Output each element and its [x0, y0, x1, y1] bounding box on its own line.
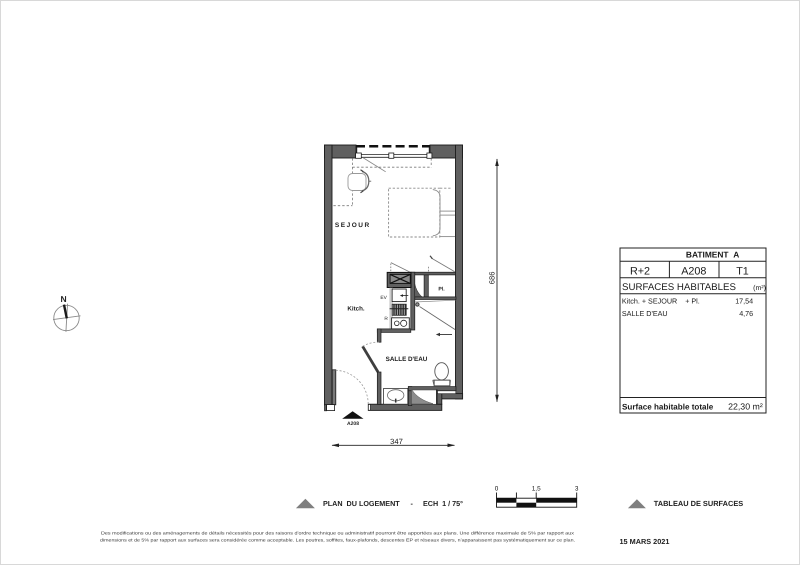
svg-text:T1: T1: [736, 266, 749, 278]
svg-text:SALLE D'EAU: SALLE D'EAU: [386, 356, 428, 363]
svg-text:Surface habitable totale: Surface habitable totale: [622, 403, 714, 412]
svg-text:3: 3: [575, 486, 579, 493]
svg-text:SALLE D'EAU: SALLE D'EAU: [622, 309, 668, 318]
svg-text:17,54: 17,54: [735, 297, 753, 306]
svg-text:(m²): (m²): [753, 284, 766, 292]
svg-text:Kitch. + SEJOUR + Pl.: Kitch. + SEJOUR + Pl.: [622, 297, 700, 306]
svg-text:15 MARS 2021: 15 MARS 2021: [620, 537, 670, 546]
svg-text:EV: EV: [380, 295, 387, 301]
svg-text:ECH 1 / 75°: ECH 1 / 75°: [423, 499, 463, 508]
svg-text:PLAN DU LOGEMENT: PLAN DU LOGEMENT: [323, 499, 400, 508]
svg-text:R: R: [384, 316, 388, 322]
svg-text:TABLEAU DE SURFACES: TABLEAU DE SURFACES: [654, 499, 743, 508]
svg-text:A208: A208: [681, 266, 706, 278]
svg-text:347: 347: [390, 437, 403, 446]
svg-text:SURFACES HABITABLES: SURFACES HABITABLES: [622, 282, 736, 293]
svg-text:686: 686: [488, 272, 497, 285]
svg-text:1,5: 1,5: [532, 486, 541, 493]
svg-text:Pl.: Pl.: [438, 286, 445, 292]
svg-text:R+2: R+2: [630, 266, 650, 278]
svg-text:A208: A208: [347, 421, 359, 427]
svg-text:4,76: 4,76: [739, 309, 753, 318]
svg-text:BATIMENT A: BATIMENT A: [686, 249, 739, 259]
svg-text:N: N: [61, 294, 67, 304]
svg-text:SEJOUR: SEJOUR: [335, 222, 371, 229]
svg-text:22,30 m²: 22,30 m²: [728, 402, 763, 412]
svg-text:0: 0: [495, 486, 499, 493]
svg-text:Des modifications ou des aména: Des modifications ou des aménagements de…: [101, 530, 575, 535]
svg-text:Kitch.: Kitch.: [347, 305, 364, 312]
svg-text:dimensions et de 5% par rappor: dimensions et de 5% par rapport aux surf…: [100, 537, 575, 542]
